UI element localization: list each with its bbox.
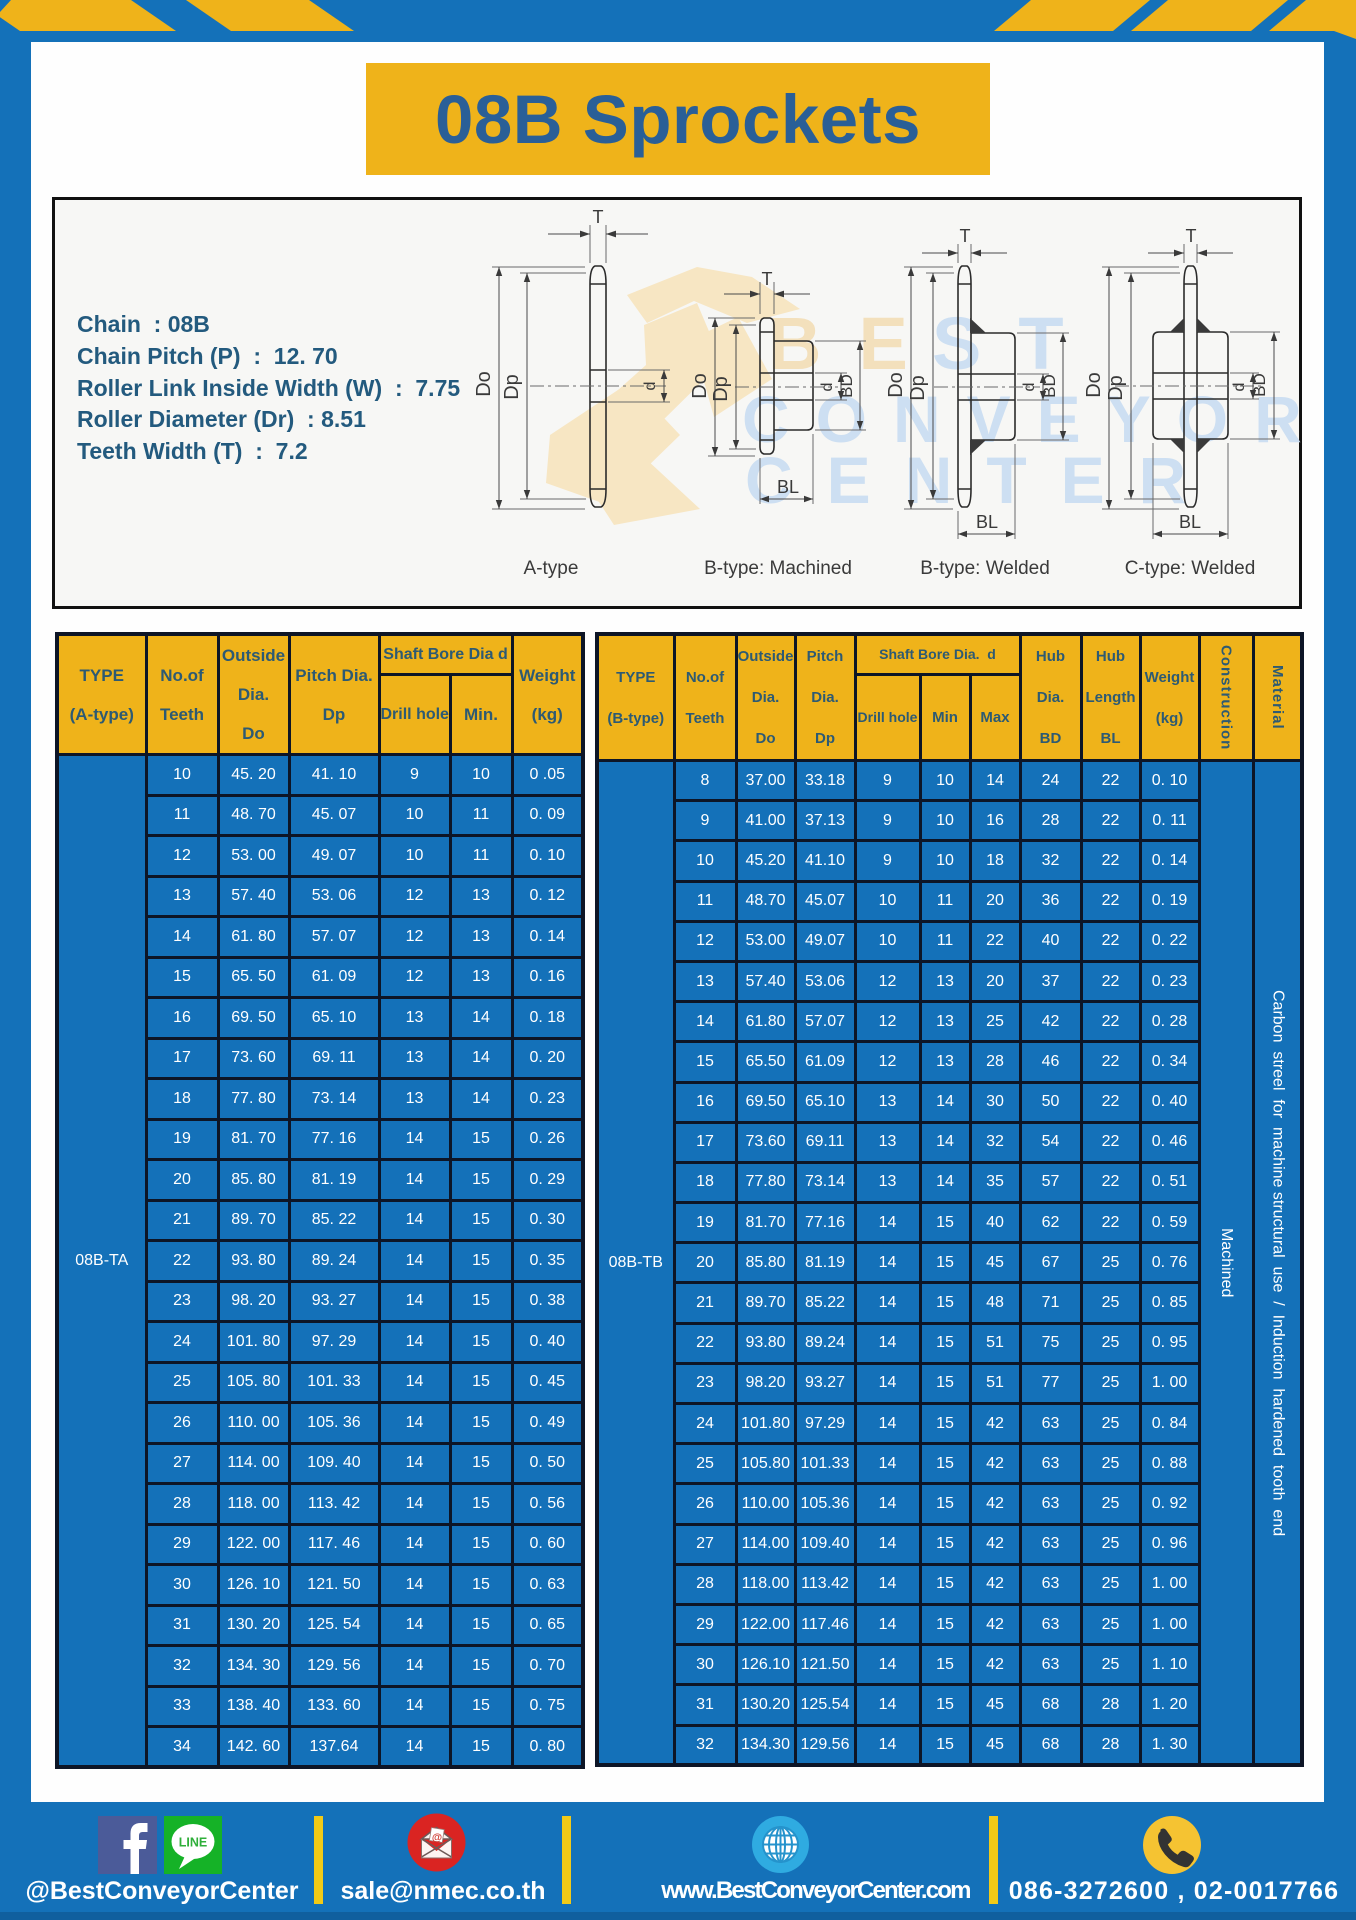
svg-text:d: d — [819, 383, 836, 392]
svg-text:d: d — [1231, 383, 1248, 392]
svg-text:B-type: Welded: B-type: Welded — [920, 558, 1050, 579]
svg-text:Do: Do — [689, 373, 711, 399]
svg-text:@: @ — [432, 1832, 442, 1844]
svg-text:BL: BL — [976, 512, 998, 532]
svg-text:d: d — [1021, 383, 1038, 392]
svg-text:T: T — [762, 269, 773, 289]
svg-text:Do: Do — [885, 372, 907, 398]
svg-text:Dp: Dp — [1105, 375, 1127, 401]
svg-text:BD: BD — [1250, 373, 1269, 397]
svg-text:d: d — [642, 382, 659, 391]
svg-text:BL: BL — [1179, 512, 1201, 532]
svg-text:T: T — [960, 226, 971, 246]
svg-text:A-type: A-type — [524, 558, 579, 579]
svg-text:Dp: Dp — [907, 375, 929, 401]
svg-text:CENTER: CENTER — [745, 443, 1220, 517]
svg-text:BL: BL — [777, 477, 799, 497]
svg-text:LINE: LINE — [179, 1836, 207, 1850]
svg-text:C-type: Welded: C-type: Welded — [1125, 558, 1256, 579]
svg-text:BD: BD — [837, 374, 856, 398]
svg-text:T: T — [593, 207, 604, 227]
svg-text:BD: BD — [1040, 374, 1059, 398]
svg-text:Do: Do — [1083, 372, 1105, 398]
svg-text:B-type: Machined: B-type: Machined — [704, 558, 852, 579]
svg-text:Dp: Dp — [710, 376, 732, 402]
svg-text:T: T — [1186, 226, 1197, 246]
